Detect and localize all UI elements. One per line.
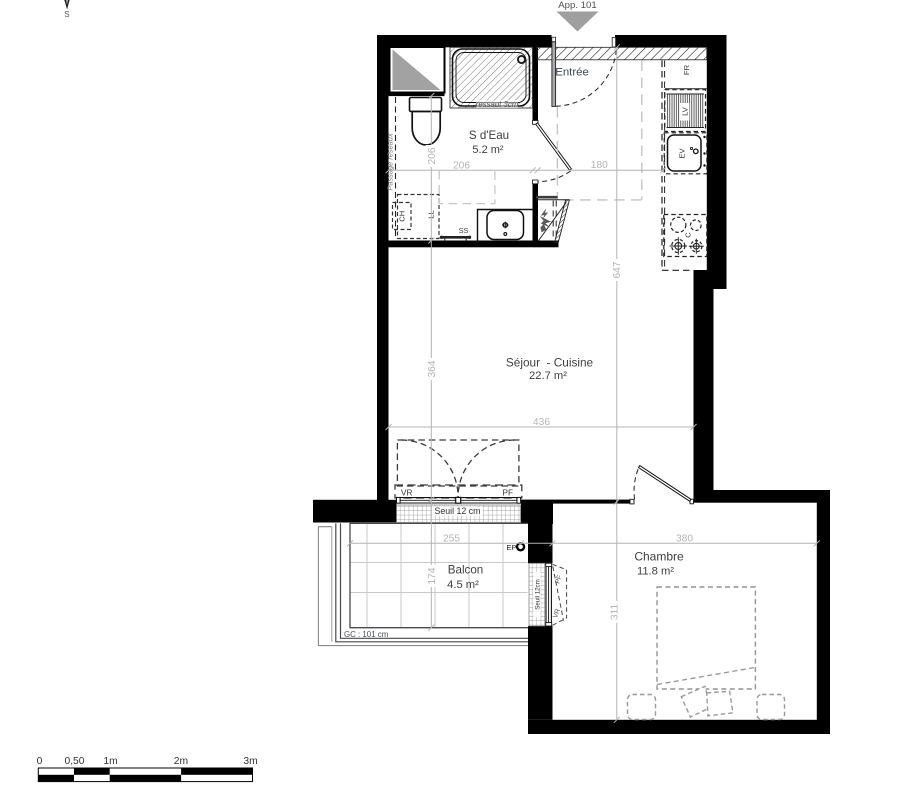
svg-text:PF: PF [503,489,513,498]
svg-text:C: C [684,232,693,238]
svg-text:180: 180 [591,160,608,171]
svg-text:0,50: 0,50 [64,756,84,767]
svg-text:Séjour - Cuisine: Séjour - Cuisine [506,356,594,370]
svg-text:3m: 3m [243,756,257,767]
svg-text:LV: LV [681,106,690,116]
svg-text:Passage réseaux: Passage réseaux [386,133,395,190]
svg-text:SS: SS [459,226,469,235]
svg-text:EV: EV [678,148,687,159]
svg-text:206: 206 [427,147,438,164]
svg-text:5.2 m²: 5.2 m² [472,144,504,156]
svg-text:4.5 m²: 4.5 m² [447,579,479,591]
svg-text:App. 101: App. 101 [558,0,596,11]
svg-text:22.7 m²: 22.7 m² [529,370,567,382]
svg-text:EP: EP [507,543,517,552]
svg-text:1m: 1m [103,756,117,767]
svg-text:0: 0 [37,756,43,767]
svg-text:647: 647 [612,261,623,278]
svg-text:Seuil 12 cm: Seuil 12 cm [435,506,481,516]
svg-text:11.8 m²: 11.8 m² [637,566,674,578]
svg-text:255: 255 [443,533,460,544]
svg-text:VR: VR [401,489,412,498]
svg-text:GC : 101 cm: GC : 101 cm [344,630,389,639]
svg-text:S d'Eau: S d'Eau [469,129,509,142]
svg-text:Chambre: Chambre [634,550,684,564]
svg-text:436: 436 [533,417,550,428]
svg-text:S: S [64,10,69,19]
svg-text:Balcon: Balcon [448,564,483,577]
svg-text:Seuil 12cm: Seuil 12cm [534,579,541,610]
svg-text:364: 364 [427,360,438,377]
svg-text:380: 380 [676,534,693,545]
svg-text:Entrée: Entrée [555,67,589,79]
svg-text:FR: FR [682,64,691,75]
svg-text:ressaut 3cm: ressaut 3cm [476,100,519,109]
svg-text:CH: CH [398,211,407,222]
svg-text:311: 311 [610,604,621,621]
svg-text:174: 174 [427,567,438,584]
svg-text:2m: 2m [174,756,188,767]
svg-text:206: 206 [453,160,470,171]
